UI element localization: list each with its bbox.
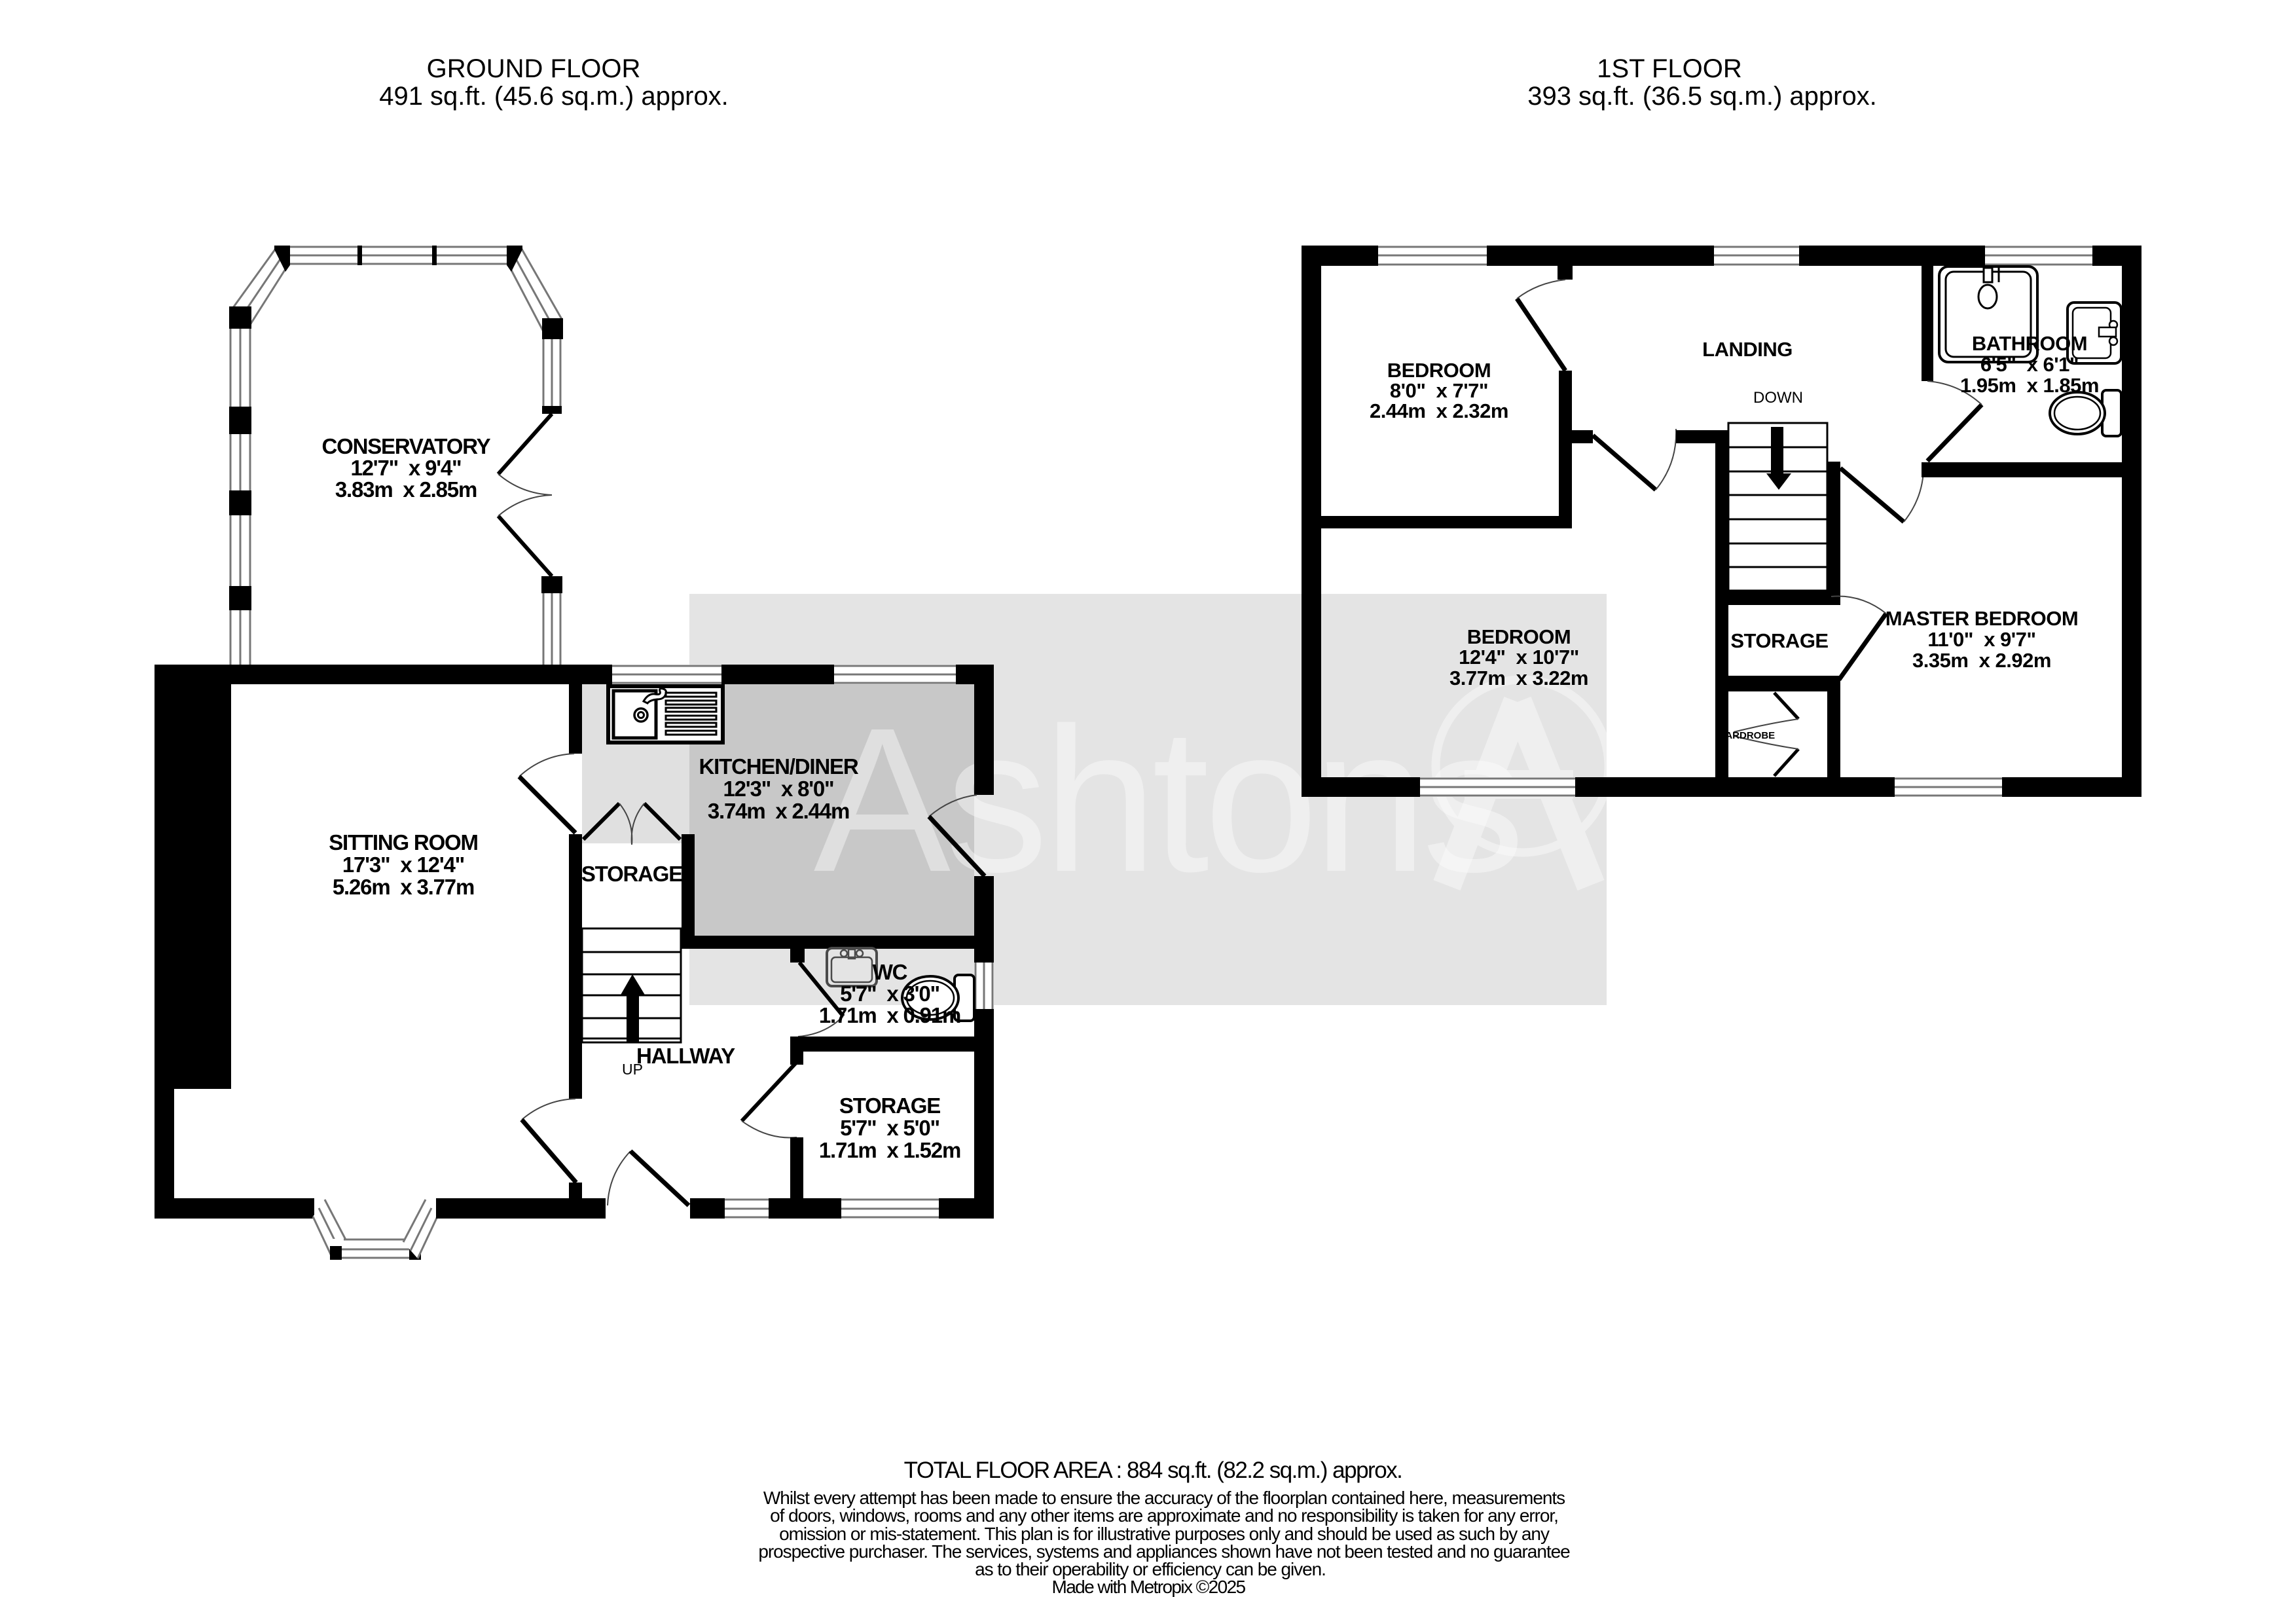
svg-text:8'0" x 7'7": 8'0" x 7'7" [1390,379,1488,402]
svg-text:BATHROOM: BATHROOM [1972,332,2087,355]
svg-text:3.74m x 2.44m: 3.74m x 2.44m [708,799,849,823]
svg-text:LANDING: LANDING [1702,338,1793,361]
svg-text:1.71m x 0.91m: 1.71m x 0.91m [819,1003,960,1027]
svg-text:STORAGE: STORAGE [581,862,682,886]
svg-text:11'0" x 9'7": 11'0" x 9'7" [1927,628,2035,651]
svg-text:491 sq.ft. (45.6 sq.m.) approx: 491 sq.ft. (45.6 sq.m.) approx. [379,82,729,111]
svg-text:393 sq.ft. (36.5 sq.m.) approx: 393 sq.ft. (36.5 sq.m.) approx. [1527,82,1877,111]
svg-text:3.77m x 3.22m: 3.77m x 3.22m [1449,667,1588,689]
svg-text:GROUND FLOOR: GROUND FLOOR [427,54,641,83]
svg-text:6'5" x 6'1": 6'5" x 6'1" [1980,353,2079,376]
svg-text:Made with Metropix ©2025: Made with Metropix ©2025 [1051,1577,1245,1597]
svg-text:Ashtons: Ashtons [814,685,1520,915]
svg-text:STORAGE: STORAGE [839,1093,940,1118]
svg-text:3.35m x 2.92m: 3.35m x 2.92m [1912,649,2051,672]
svg-text:BEDROOM: BEDROOM [1387,359,1491,382]
svg-text:2.44m x 2.32m: 2.44m x 2.32m [1370,399,1508,422]
svg-text:3.83m x 2.85m: 3.83m x 2.85m [335,477,477,502]
svg-text:BEDROOM: BEDROOM [1467,625,1571,648]
svg-text:5.26m x 3.77m: 5.26m x 3.77m [333,875,474,899]
svg-text:5'7" x 3'0": 5'7" x 3'0" [840,982,939,1006]
svg-text:12'4" x 10'7": 12'4" x 10'7" [1459,646,1579,669]
svg-text:UP: UP [622,1061,643,1078]
svg-text:WARDROBE: WARDROBE [1717,730,1775,741]
svg-text:12'7" x 9'4": 12'7" x 9'4" [350,456,461,480]
svg-text:SITTING ROOM: SITTING ROOM [329,830,478,854]
svg-text:MASTER BEDROOM: MASTER BEDROOM [1886,607,2078,630]
svg-text:STORAGE: STORAGE [1730,629,1828,652]
svg-text:1.71m x 1.52m: 1.71m x 1.52m [819,1138,960,1162]
svg-text:KITCHEN/DINER: KITCHEN/DINER [699,754,859,779]
svg-text:1ST FLOOR: 1ST FLOOR [1597,54,1742,83]
svg-text:17'3" x 12'4": 17'3" x 12'4" [342,853,464,877]
svg-text:DOWN: DOWN [1753,389,1803,407]
svg-text:5'7" x 5'0": 5'7" x 5'0" [840,1116,939,1140]
svg-text:TOTAL FLOOR AREA : 884 sq.ft.: TOTAL FLOOR AREA : 884 sq.ft. (82.2 sq.m… [904,1458,1402,1483]
svg-text:12'3" x 8'0": 12'3" x 8'0" [723,777,833,801]
svg-text:1.95m x 1.85m: 1.95m x 1.85m [1960,374,2099,397]
svg-text:CONSERVATORY: CONSERVATORY [322,434,491,458]
svg-text:HALLWAY: HALLWAY [636,1044,735,1068]
svg-text:of doors, windows, rooms and a: of doors, windows, rooms and any other i… [770,1505,1558,1526]
svg-text:WC: WC [873,960,907,984]
